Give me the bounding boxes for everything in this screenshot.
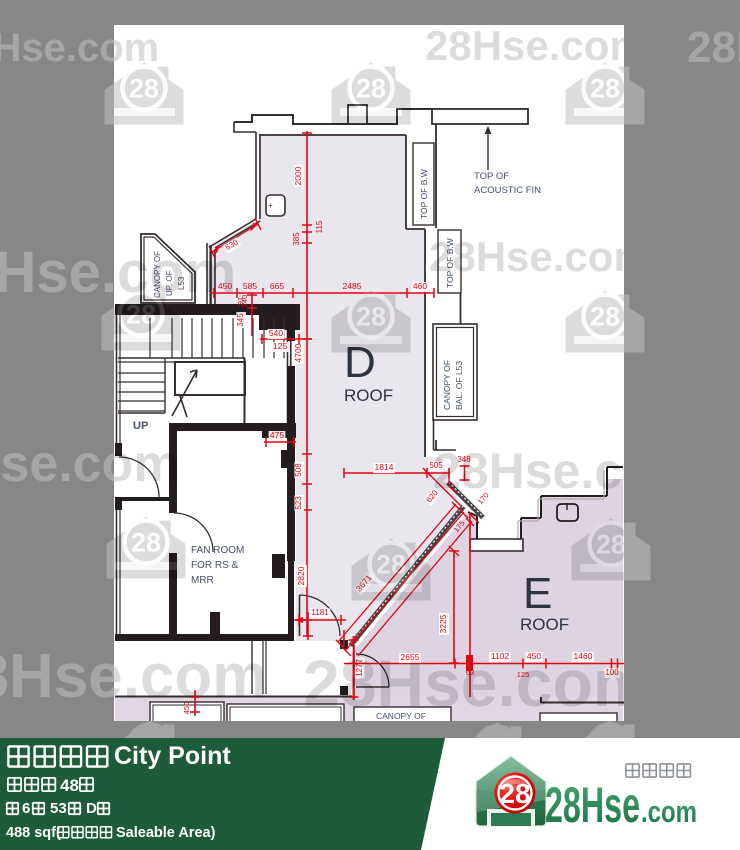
svg-text:345: 345 [236,313,245,327]
svg-text:FAN ROOM: FAN ROOM [191,545,244,556]
svg-text:E: E [523,569,552,618]
svg-text:ACOUSTIC FIN: ACOUSTIC FIN [474,185,541,196]
svg-text:28: 28 [499,778,530,809]
svg-text:115: 115 [315,220,324,233]
svg-text:CANOPY OF: CANOPY OF [442,360,452,410]
svg-text:.com: .com [641,794,697,829]
svg-text:6: 6 [22,800,30,817]
svg-text:508: 508 [294,463,303,477]
svg-text:1814: 1814 [375,462,394,472]
svg-text:BAL. OF L53: BAL. OF L53 [454,361,464,410]
svg-text:488 sqf(: 488 sqf( [6,825,61,841]
svg-text:ROOF: ROOF [344,386,393,405]
svg-text:ROOF: ROOF [520,615,569,634]
svg-text:D: D [86,800,97,817]
svg-text:City Point: City Point [114,742,231,770]
svg-text:1181: 1181 [311,608,329,617]
svg-text:28Hse.com: 28Hse.com [687,23,740,72]
svg-text:28Hse.com: 28Hse.com [429,233,651,280]
svg-text:4700: 4700 [293,343,303,362]
svg-text:2000: 2000 [293,166,303,185]
svg-text:48: 48 [60,776,79,795]
svg-text:3225: 3225 [438,614,448,633]
svg-text:53: 53 [50,800,67,817]
svg-text:665: 665 [270,281,284,291]
svg-text:585: 585 [243,281,257,291]
svg-text:UP: UP [133,420,148,432]
svg-text:+: + [268,201,273,210]
svg-text:475: 475 [270,430,284,440]
svg-text:Saleable Area): Saleable Area) [116,825,216,841]
svg-text:540: 540 [269,328,283,338]
svg-text:28Hse.com: 28Hse.com [303,646,652,720]
svg-text:28Hse: 28Hse [545,777,640,833]
svg-text:523: 523 [294,496,303,510]
svg-text:TOP OF B.W: TOP OF B.W [419,169,429,219]
svg-text:FOR RS &: FOR RS & [191,560,239,571]
svg-text:TOP OF: TOP OF [474,171,509,182]
svg-text:385: 385 [292,232,301,246]
svg-text:2820: 2820 [296,566,306,585]
svg-text:MRR: MRR [191,575,214,586]
svg-text:460: 460 [413,281,427,291]
svg-text:28Hse.com: 28Hse.com [425,22,647,69]
svg-text:240: 240 [240,295,249,308]
svg-text:2485: 2485 [343,281,362,291]
svg-text:125: 125 [273,341,287,351]
